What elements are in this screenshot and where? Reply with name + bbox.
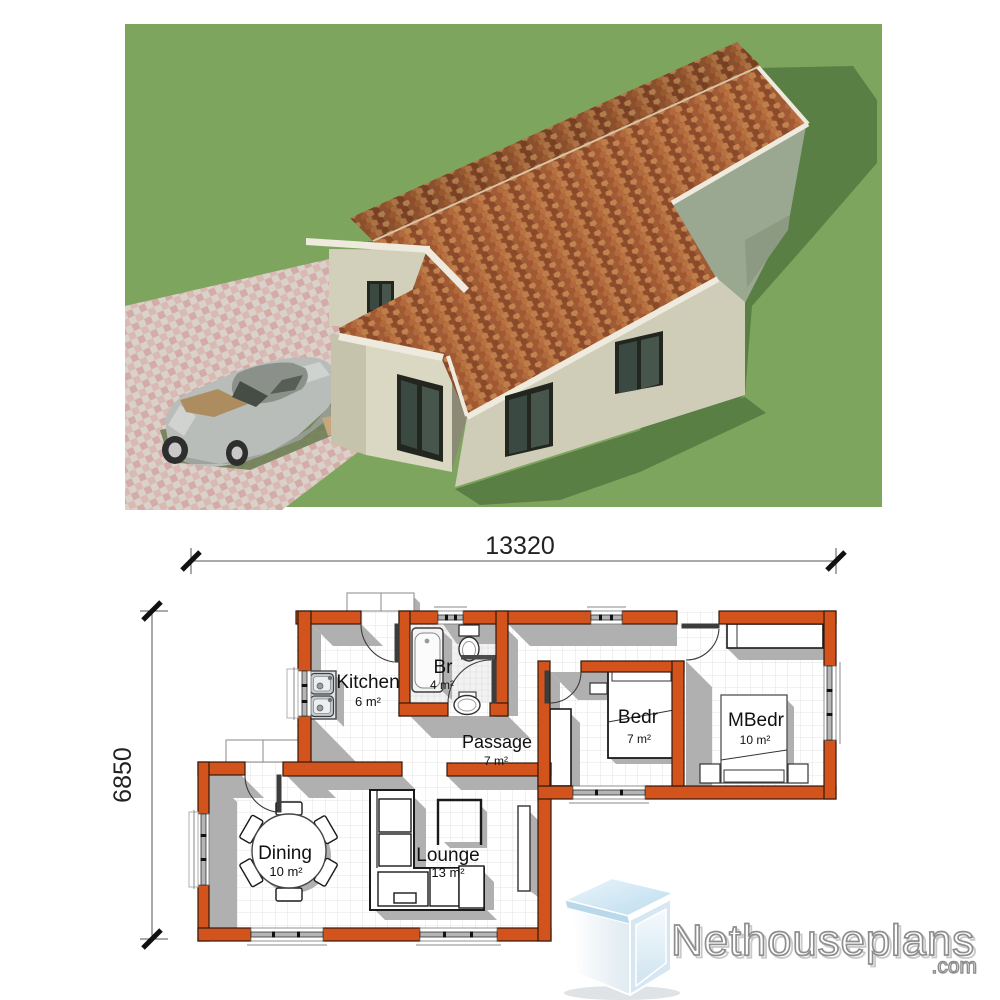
svg-text:Kitchen: Kitchen [336, 672, 399, 693]
svg-text:7 m²: 7 m² [484, 754, 508, 768]
svg-text:13320: 13320 [485, 532, 555, 560]
svg-text:Bedr: Bedr [618, 707, 659, 728]
svg-text:7 m²: 7 m² [627, 732, 651, 746]
svg-text:10 m²: 10 m² [269, 864, 303, 879]
svg-text:Br: Br [434, 657, 454, 678]
svg-text:MBedr: MBedr [728, 710, 785, 731]
svg-text:6 m²: 6 m² [355, 694, 382, 709]
svg-text:Lounge: Lounge [416, 845, 479, 866]
svg-text:13 m²: 13 m² [431, 865, 465, 880]
svg-text:Passage: Passage [462, 732, 532, 752]
svg-text:4 m²: 4 m² [430, 678, 454, 692]
svg-text:10 m²: 10 m² [740, 733, 771, 747]
svg-text:Dining: Dining [258, 843, 312, 864]
svg-text:Nethouseplans: Nethouseplans [671, 916, 975, 965]
svg-text:.com: .com [931, 955, 977, 978]
svg-text:6850: 6850 [109, 747, 137, 803]
